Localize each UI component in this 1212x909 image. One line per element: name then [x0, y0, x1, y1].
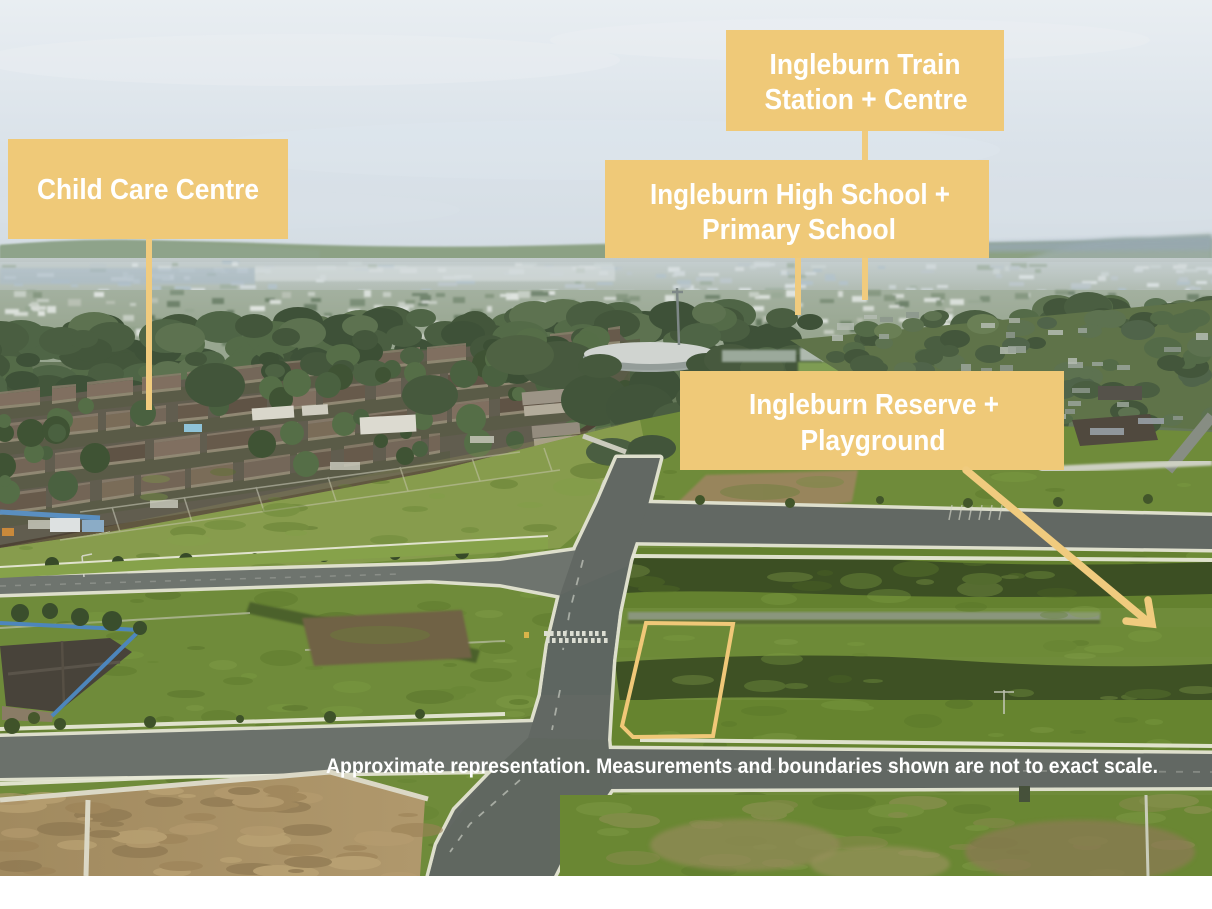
svg-text:Ingleburn High School +: Ingleburn High School + — [650, 179, 950, 211]
svg-text:Approximate representation. Me: Approximate representation. Measurements… — [326, 755, 1158, 778]
svg-text:Ingleburn Reserve +: Ingleburn Reserve + — [749, 389, 999, 421]
svg-text:Ingleburn Train: Ingleburn Train — [770, 49, 961, 81]
svg-text:Station + Centre: Station + Centre — [765, 84, 968, 116]
svg-text:Playground: Playground — [801, 425, 946, 457]
svg-text:Child Care Centre: Child Care Centre — [37, 174, 259, 206]
svg-text:Primary School: Primary School — [702, 214, 896, 246]
